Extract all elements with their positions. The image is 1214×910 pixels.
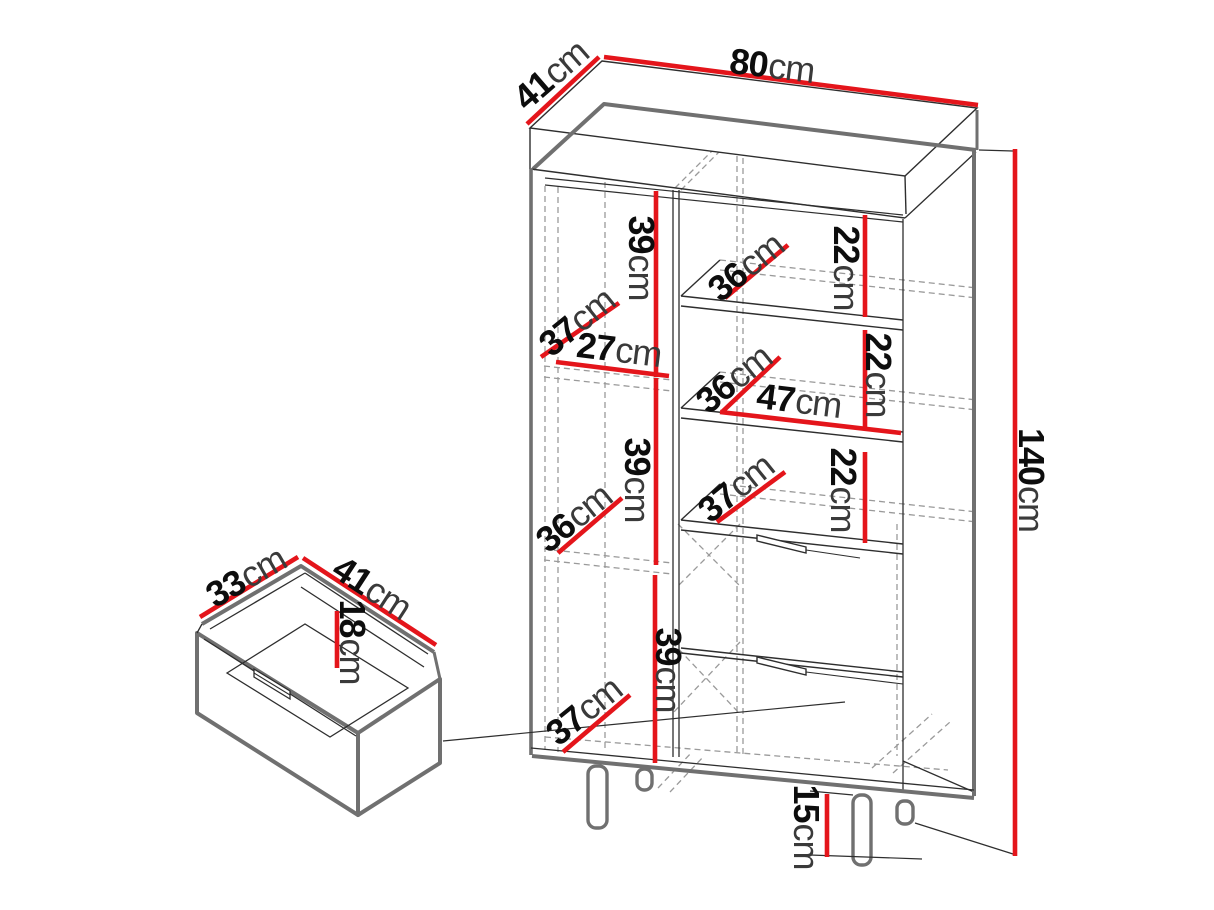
dim-line-37-shelf-c — [717, 472, 785, 522]
drawer-detail — [197, 566, 440, 815]
hidden-dashed-lines — [544, 126, 977, 792]
dimension-diagram: 41cm 80cm 140cm 39cm 37cm 27cm 36cm 39cm… — [0, 0, 1214, 910]
cabinet-legs — [588, 766, 913, 865]
back-left-leg — [637, 769, 652, 790]
cabinet-carcass — [531, 150, 976, 798]
dim-line-27 — [556, 362, 669, 376]
dim-line-47 — [720, 412, 901, 433]
dim-line-36-left — [558, 498, 622, 553]
dim-line-36-shelf-b — [722, 357, 780, 412]
cabinet-drawers — [681, 535, 903, 684]
extension-lines — [443, 150, 1013, 859]
front-left-leg — [588, 766, 607, 828]
dim-line-33-drawer — [200, 557, 298, 617]
dim-line-37-upper — [541, 303, 619, 357]
drawer-leader-line — [443, 702, 845, 741]
front-right-leg — [853, 795, 871, 865]
top-slab — [530, 61, 977, 214]
back-right-leg — [897, 801, 913, 824]
cabinet-line-art — [0, 0, 1214, 910]
